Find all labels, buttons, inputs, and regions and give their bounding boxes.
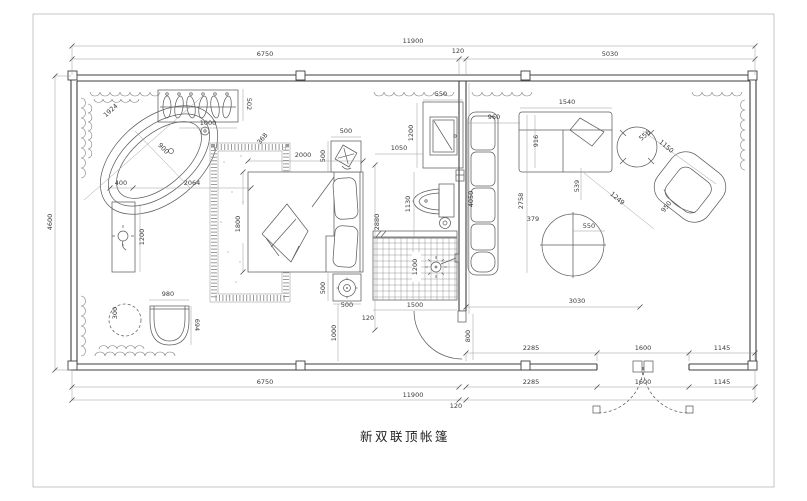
dim-shower-w: 1500 [407,301,424,309]
dim-tv-gap: 1050 [391,144,408,152]
dim-sofa-width: 1540 [559,98,576,106]
dim-rug-offset: 1000 [330,325,338,342]
dim-rug-gap: 120 [362,314,374,322]
dim-top-left: 6750 [257,50,274,58]
nightstand-bottom [333,274,361,301]
dim-bot-in-1: 2285 [523,344,540,352]
dim-bench-len: 2758 [517,193,525,210]
dim-bed-length: 2000 [295,151,312,159]
dim-bottom-partition: 120 [450,402,462,410]
dim-top-right: 5030 [602,50,619,58]
dim-top-overall: 11900 [403,37,424,45]
dim-nightstand-top-w: 500 [340,127,352,135]
bed [248,172,363,272]
dimension-labels: 11900 6750 120 5030 4600 1924 900 1000 5… [46,37,730,410]
hanger-icons [163,93,232,119]
tv-cabinet [423,102,463,168]
dim-tub-length: 1924 [102,102,120,119]
floor-drain-icon [440,218,451,229]
clothes-rack [158,90,238,122]
dim-rack-width: 1000 [200,119,217,127]
dim-bed-to-wall: 2880 [373,214,381,231]
dim-door-open: 800 [464,330,472,342]
dim-bot-in-2: 1600 [635,344,652,352]
dim-bot-out-1: 2285 [523,378,540,386]
nightstand-top [331,141,361,172]
interior-door [414,311,466,359]
dim-rack-offset: 368 [255,131,269,146]
dim-tv-width: 550 [435,90,447,98]
dim-side-left: 4600 [46,214,54,231]
dim-console-width: 400 [115,179,127,187]
shower-threshold [373,231,457,237]
dim-console-gap: 2064 [184,179,201,187]
dim-partition: 4050 [467,191,475,208]
dim-living-width: 3030 [569,297,586,305]
dim-nightstand-top-h: 500 [319,150,327,162]
pillow [333,177,359,220]
dim-tv-height: 1200 [407,125,415,142]
dim-shower-h: 1200 [411,259,419,276]
dim-nightstand-bot-h: 500 [319,282,327,294]
toilet [413,184,454,217]
dim-sofa-gap: 960 [488,113,500,121]
tub-chair [150,306,189,345]
wall-bracket [456,170,464,181]
drawing-title: 新双联顶帐篷 [360,429,450,444]
console-table [112,202,135,272]
floor-plan-canvas: 11900 6750 120 5030 4600 1924 900 1000 5… [0,0,807,501]
dim-chair-width: 980 [162,290,174,298]
side-table [617,127,657,167]
dim-stool: 300 [111,307,119,319]
dim-bed-width: 1800 [234,216,242,233]
drawing-sheet: 11900 6750 120 5030 4600 1924 900 1000 5… [0,0,807,501]
pillow [333,225,359,268]
dim-bottom-left: 6750 [257,378,274,386]
dim-rack-depth: 502 [245,98,253,110]
dim-toilet: 1130 [404,196,412,213]
dim-table-gap: 539 [573,180,581,192]
dim-bench-gap: 379 [527,215,539,223]
walls [71,75,756,370]
dim-bot-out-2: 1600 [635,378,652,386]
dim-chair-depth: 694 [193,319,201,331]
sheet-border [33,14,774,487]
dim-tub-width: 900 [156,141,170,155]
dim-sofa-depth: 916 [532,135,540,147]
dim-nightstand-bot-w: 500 [341,301,353,309]
dim-console-length: 1200 [138,229,146,246]
dim-bottom-overall: 11900 [403,391,424,399]
armchair [647,144,733,229]
dim-bot-in-3: 1145 [714,344,731,352]
flower-icon [118,231,128,241]
round-table [540,212,606,278]
dim-round-table: 550 [583,222,595,230]
dim-bot-out-3: 1145 [714,378,731,386]
dim-top-partition: 120 [452,47,464,55]
shower-head-icon [425,254,459,278]
